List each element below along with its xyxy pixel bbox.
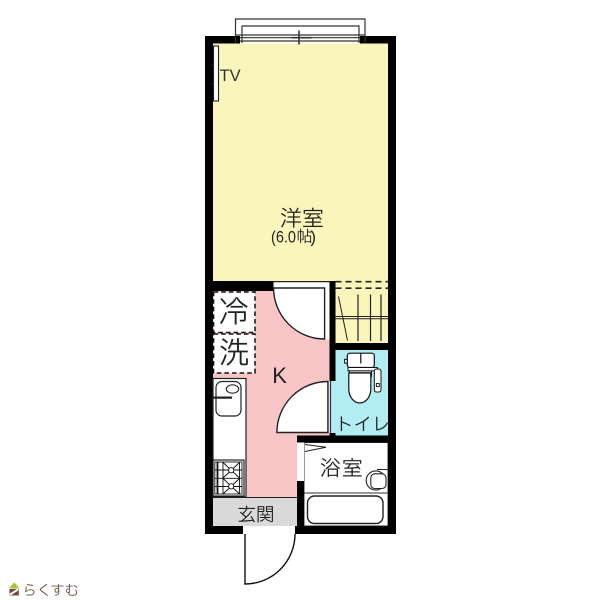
svg-text:K: K [272, 363, 287, 388]
svg-text:): ) [311, 229, 317, 247]
svg-text:(6.0: (6.0 [271, 229, 296, 247]
svg-text:TV: TV [220, 67, 241, 85]
